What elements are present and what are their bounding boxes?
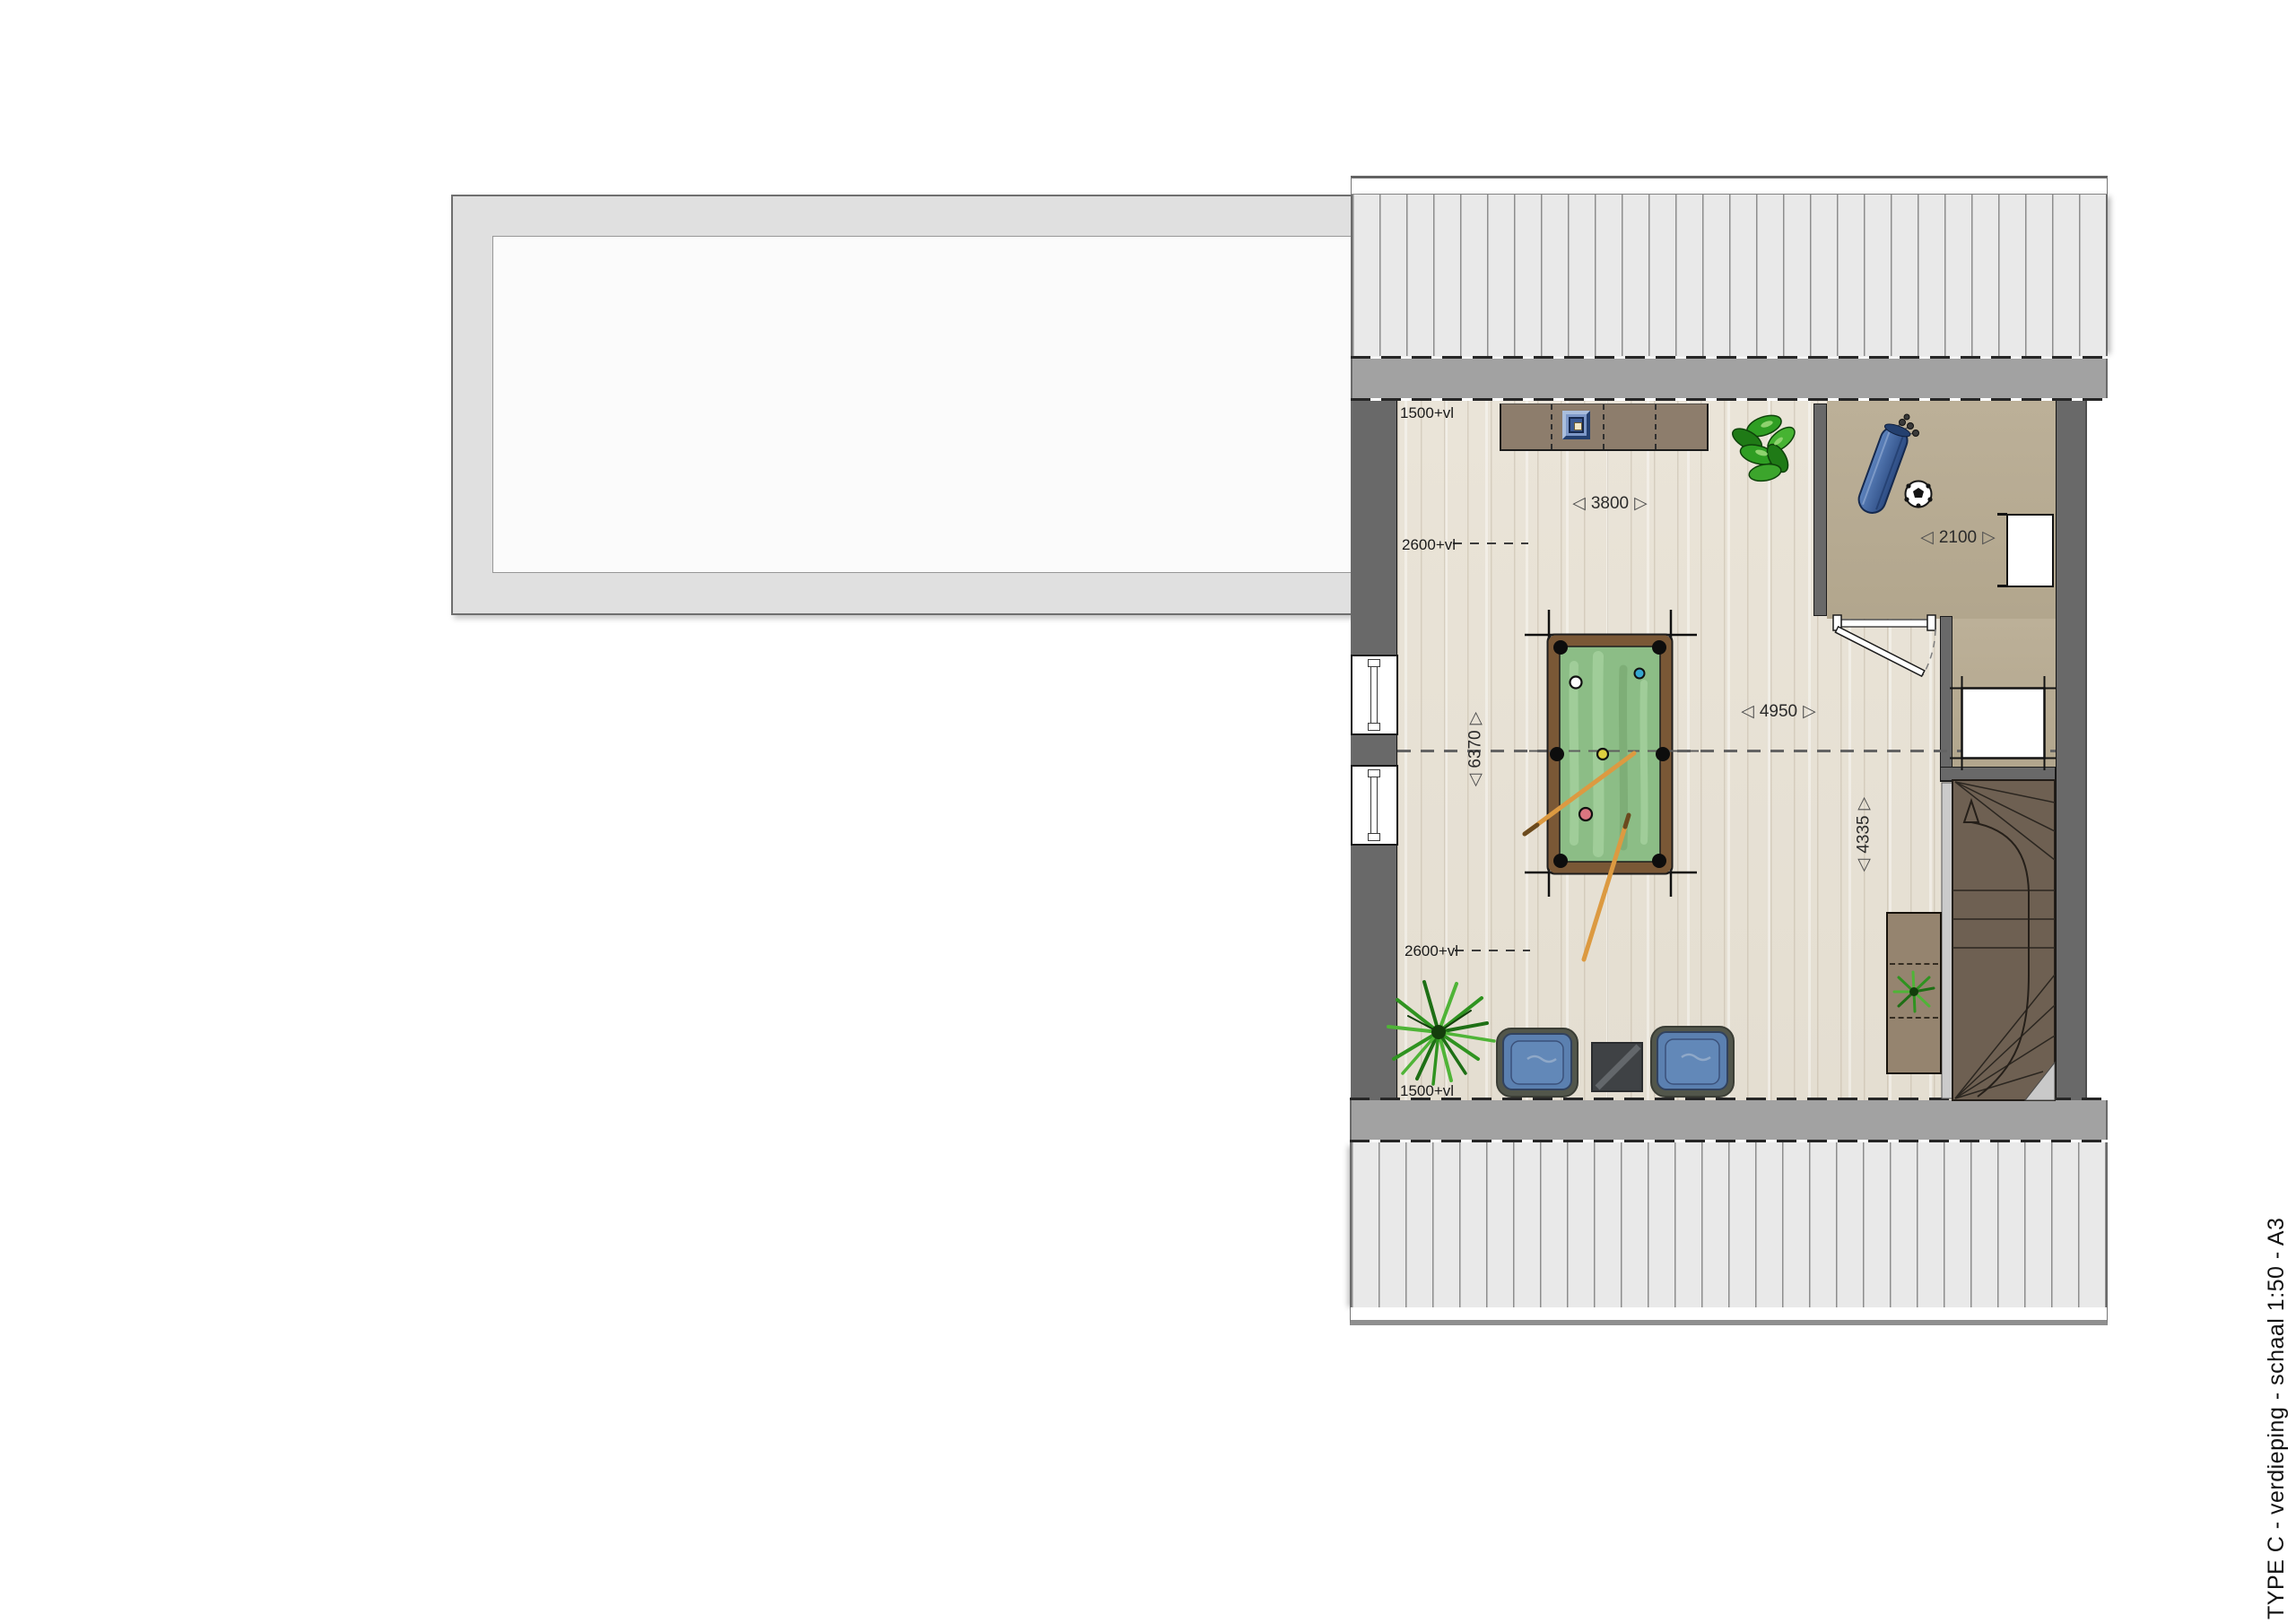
dim-arrow-left-icon: ◁ (1920, 529, 1934, 546)
cabinet-divider (1603, 404, 1605, 449)
pool-table (1498, 583, 1731, 977)
dimension-room-width: ◁ 3800 ▷ (1552, 495, 1668, 512)
dim-arrow-left-icon: ◁ (1572, 495, 1586, 512)
drawing-title: TYPE C - verdieping - schaal 1:50 - A3 (2264, 1218, 2290, 1619)
window-left-upper (1351, 655, 1398, 735)
armchair-left (1497, 1028, 1578, 1097)
dim-arrow-up-icon: ▷ (1467, 712, 1484, 725)
floorplan-canvas: 1500+vl 2600+vl 2600+vl 1500+vl ◁ 3800 ▷… (0, 0, 2296, 1623)
dimension-value: 4950 (1760, 703, 1797, 720)
yellow-ball (1597, 749, 1608, 759)
plant-center (1909, 987, 1918, 996)
cabinet-skylight-inner (1569, 417, 1584, 433)
dim-arrow-down-icon: ◁ (1467, 774, 1484, 787)
window-frame-block (1368, 833, 1380, 841)
door-swing-arc (1923, 629, 1935, 675)
dimension-value: 4335 (1856, 815, 1873, 853)
golf-bag (1855, 421, 1911, 516)
level-label-top-1500: 1500+vl (1400, 405, 1454, 421)
door-storage (1821, 608, 1948, 687)
cabinet-skylight-center (1574, 422, 1582, 430)
window-frame-block (1368, 769, 1380, 777)
window-frame-block (1368, 723, 1380, 731)
dim-arrow-down-icon: ◁ (1856, 859, 1873, 872)
armchair-right (1651, 1027, 1734, 1097)
seating-group (1484, 1018, 1744, 1107)
partition-wall-storage (1813, 404, 1827, 616)
window-frame-block (1368, 659, 1380, 667)
headroom-dash-top (1453, 542, 1528, 544)
dimension-room-depth: ◁ 6370 ▷ (1467, 691, 1484, 808)
flat-roof-inner (492, 236, 1351, 573)
window-storage-void (1946, 673, 2063, 773)
cabinet-divider (1655, 404, 1657, 449)
roof-hatch-bottom (1350, 1142, 2108, 1307)
dimension-value: 2100 (1939, 529, 1977, 546)
roof-hatch-top (1351, 195, 2108, 356)
plant-desk (1888, 967, 1942, 1020)
window-mullion (1370, 772, 1378, 838)
dim-arrow-right-icon: ▷ (1982, 529, 1996, 546)
roof-edge-band-top (1351, 359, 2108, 398)
skylight-tick-top (1997, 513, 2007, 516)
skylight-tick-bottom (1997, 585, 2007, 587)
red-ball (1579, 808, 1592, 820)
soccer-ball (1904, 482, 1932, 508)
cabinet-divider (1551, 404, 1552, 449)
side-table (1592, 1043, 1642, 1091)
blue-ball (1635, 669, 1645, 679)
roof-ridge-strip-top (1351, 176, 2108, 195)
roof-ridge-strip-bottom (1350, 1307, 2108, 1325)
cabinet-top (1500, 404, 1709, 451)
dimension-value: 6370 (1467, 730, 1484, 768)
dim-arrow-right-icon: ▷ (1803, 703, 1816, 720)
window-mullion (1370, 662, 1378, 728)
cabinet-skylight-frame (1562, 411, 1590, 439)
flat-roof-outline (451, 195, 1352, 615)
plant-leafy (1722, 399, 1807, 498)
plant-spiky (1381, 973, 1502, 1094)
dim-arrow-up-icon: ▷ (1856, 797, 1873, 811)
dimension-value: 3800 (1591, 495, 1629, 512)
stair-balustrade (1942, 783, 1952, 1098)
skylight-storage (2006, 514, 2054, 587)
dimension-stair-depth: ◁ 4335 ▷ (1856, 777, 1873, 893)
dimension-mid-width: ◁ 4950 ▷ (1720, 703, 1837, 720)
plant-center (1431, 1025, 1446, 1039)
dim-arrow-right-icon: ▷ (1634, 495, 1648, 512)
roofline-dashed-top-outer (1351, 356, 2108, 359)
door-leaf (1835, 627, 1924, 676)
dimension-storage-width: ◁ 2100 ▷ (1900, 529, 2016, 546)
dim-arrow-left-icon: ◁ (1741, 703, 1754, 720)
level-label-top-2600: 2600+vl (1402, 537, 1456, 552)
cue-ball (1570, 677, 1582, 689)
golf-bag-group (1830, 412, 1933, 534)
desk-divider (1890, 963, 1938, 965)
window-left-lower (1351, 765, 1398, 846)
plant-leaves (1729, 412, 1799, 483)
level-label-bottom-1500: 1500+vl (1400, 1083, 1454, 1098)
level-label-bottom-2600: 2600+vl (1405, 943, 1458, 959)
staircase (1937, 767, 2058, 1107)
